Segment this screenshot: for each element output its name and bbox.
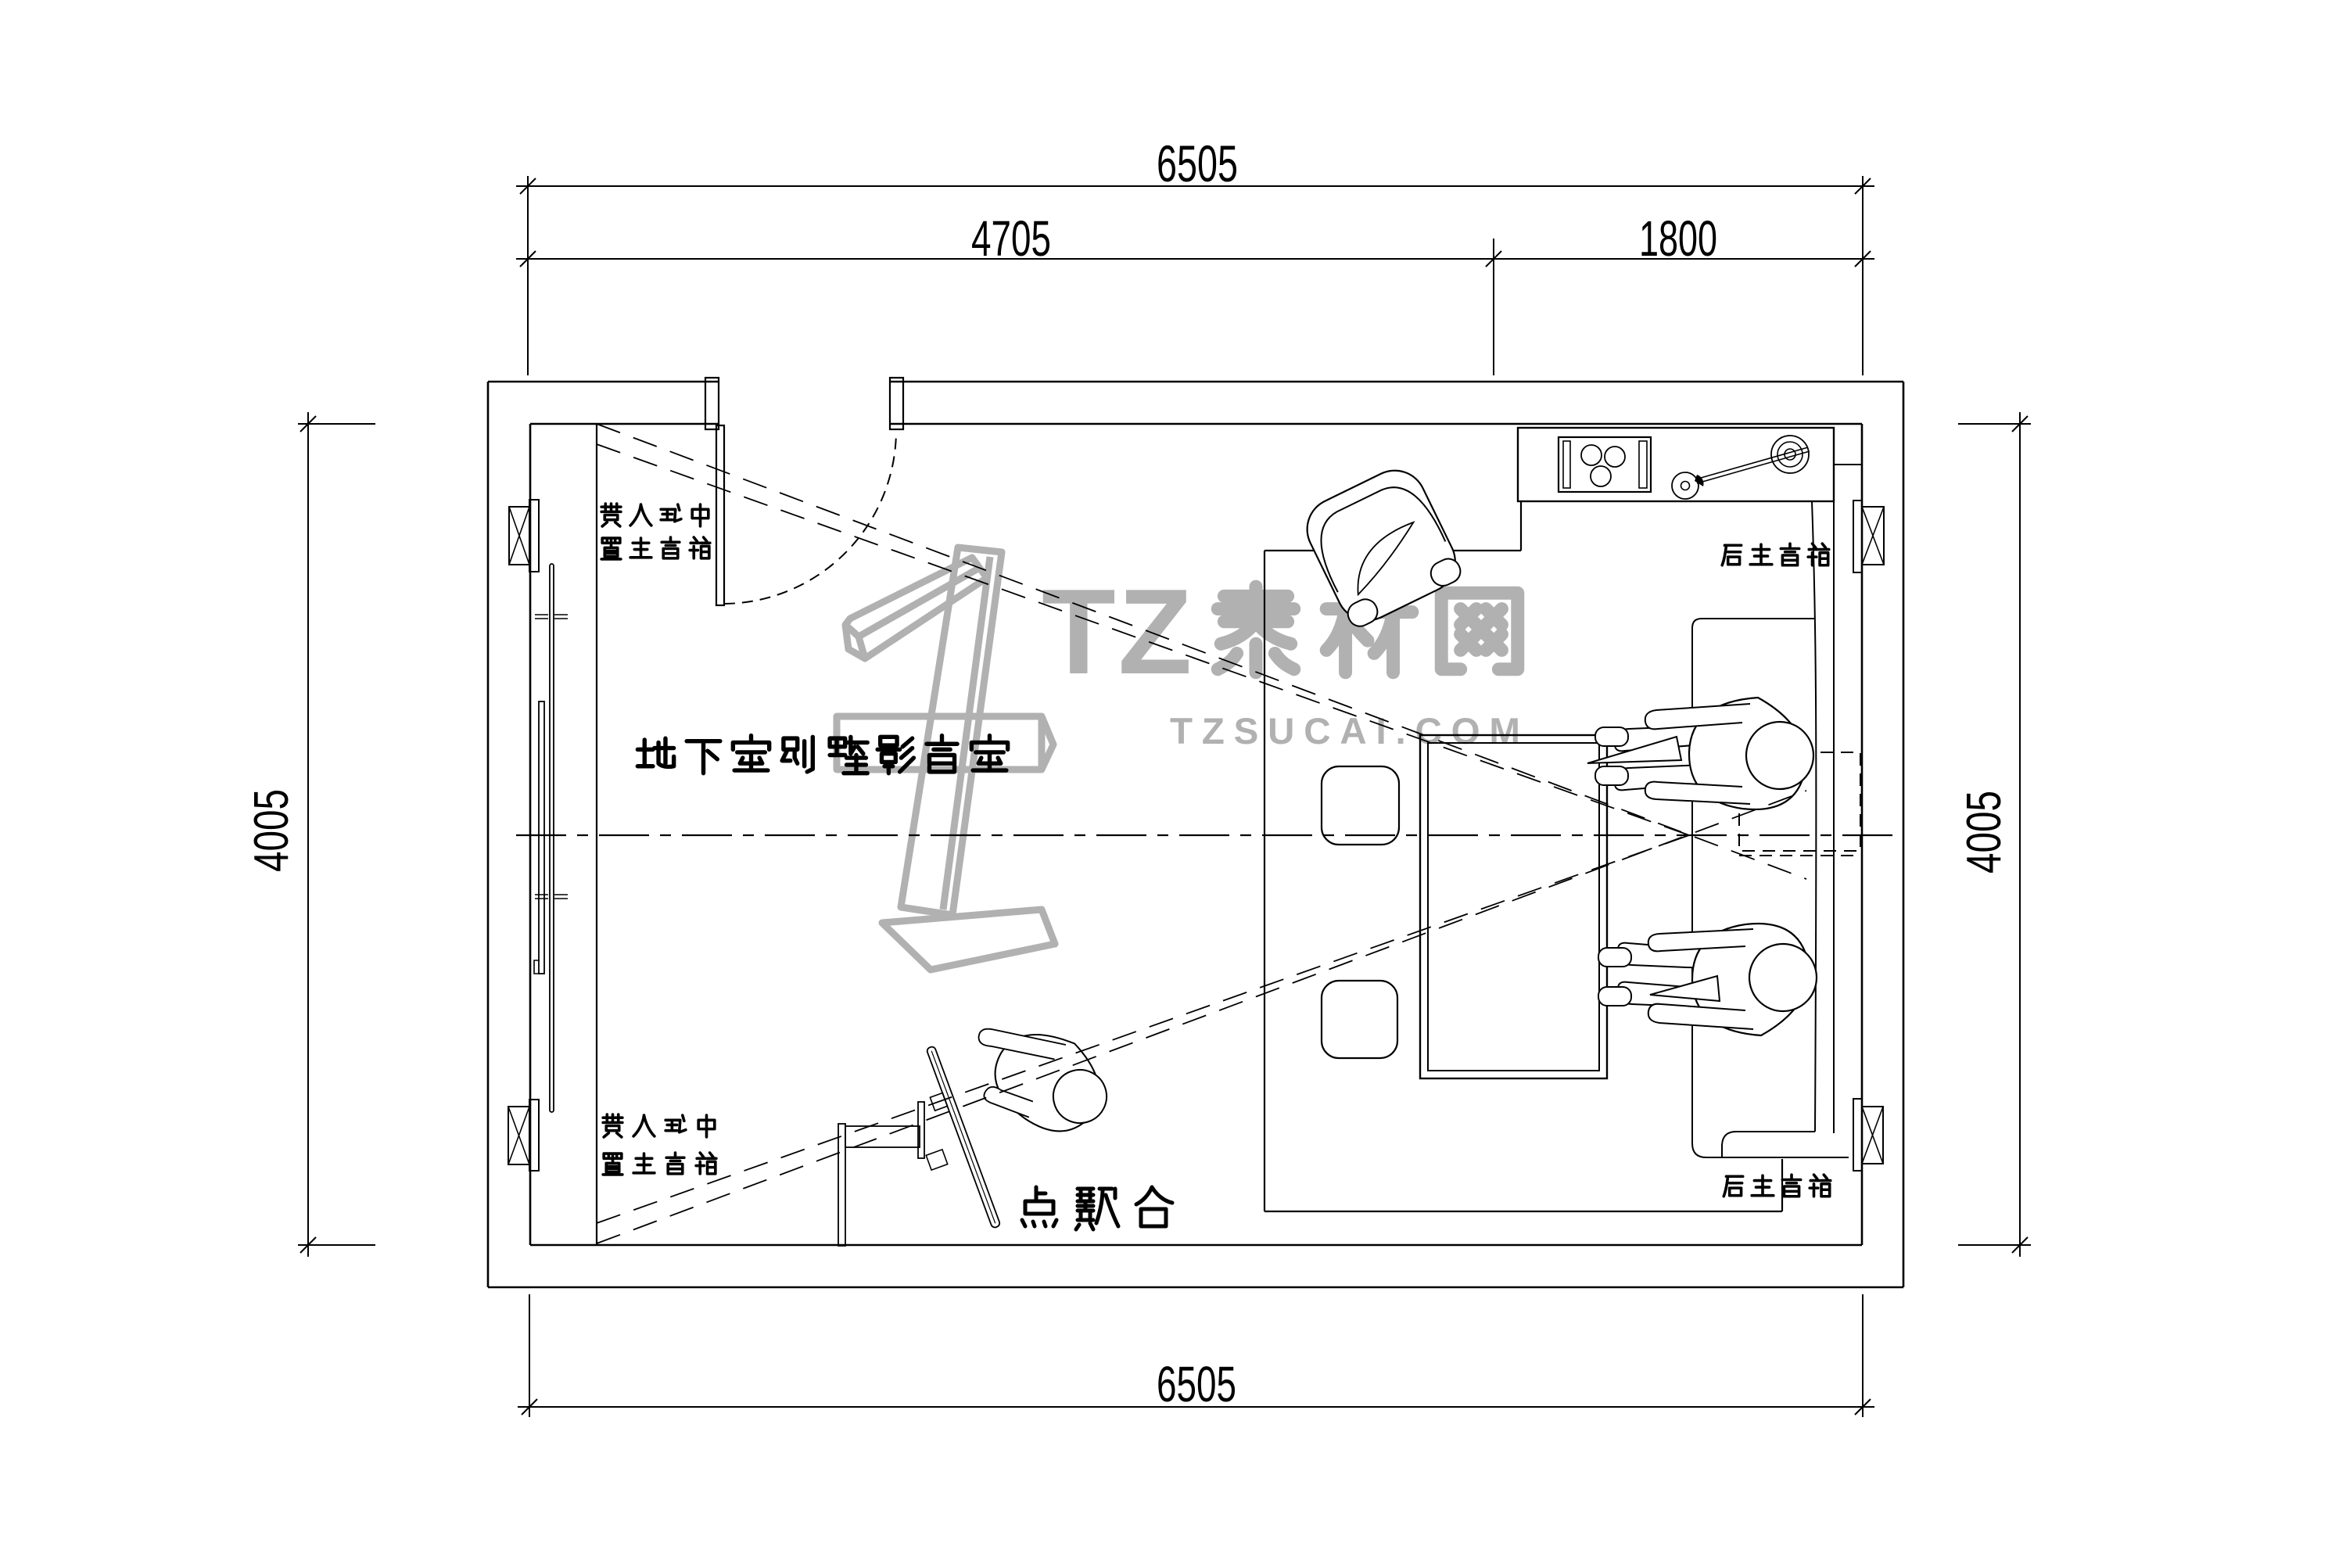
svg-text:4005: 4005 bbox=[245, 789, 299, 872]
svg-text:4005: 4005 bbox=[1957, 791, 2011, 874]
svg-text:1800: 1800 bbox=[1639, 210, 1717, 267]
svg-text:TZSUCAI.COM: TZSUCAI.COM bbox=[1170, 711, 1520, 752]
svg-text:4705: 4705 bbox=[971, 210, 1051, 267]
svg-text:6505: 6505 bbox=[1157, 1356, 1236, 1412]
svg-text:6505: 6505 bbox=[1157, 135, 1238, 192]
